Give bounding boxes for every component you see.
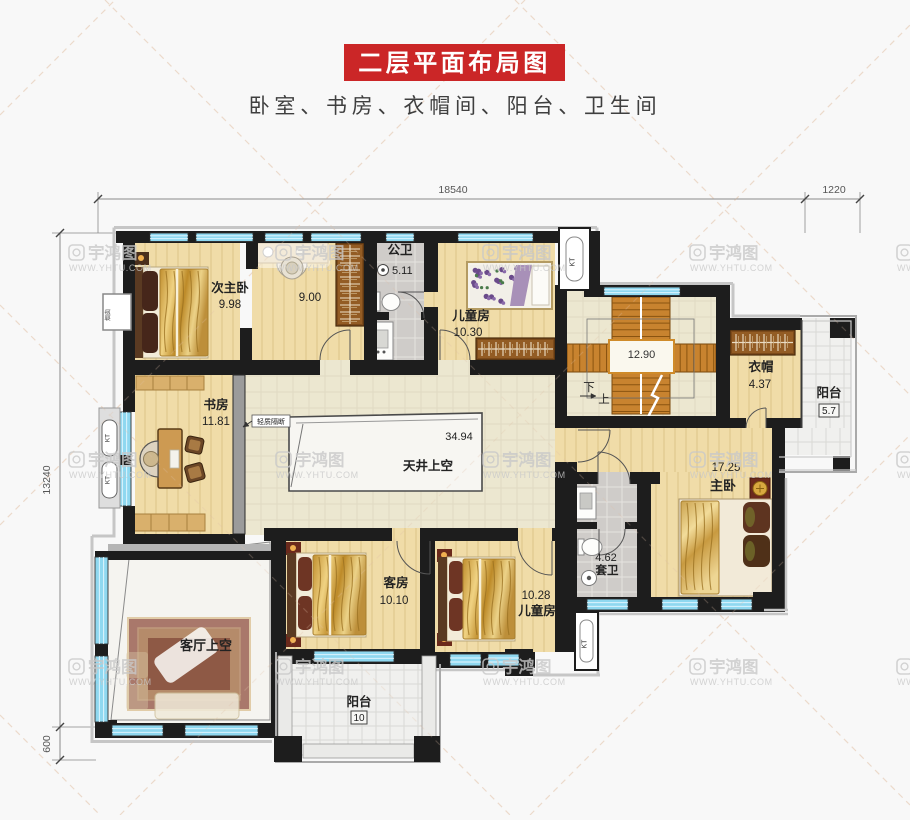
svg-text:客房: 客房 [382, 575, 408, 590]
svg-text:12.90: 12.90 [628, 349, 656, 361]
svg-text:WWW.YHTU.COM: WWW.YHTU.COM [897, 470, 910, 480]
svg-text:宇鸿图: 宇鸿图 [502, 243, 552, 263]
svg-text:宇鸿图: 宇鸿图 [709, 657, 759, 677]
svg-text:1220: 1220 [822, 184, 846, 196]
svg-text:上: 上 [598, 393, 610, 406]
svg-text:10: 10 [353, 713, 365, 724]
svg-text:卧室、书房、衣帽间、阳台、卫生间: 卧室、书房、衣帽间、阳台、卫生间 [249, 95, 662, 118]
svg-text:衣帽: 衣帽 [748, 359, 773, 374]
svg-text:34.94: 34.94 [445, 431, 473, 443]
svg-text:宇鸿图: 宇鸿图 [295, 657, 345, 677]
svg-text:宇鸿图: 宇鸿图 [709, 450, 759, 470]
svg-text:WWW.YHTU.COM: WWW.YHTU.COM [69, 677, 152, 687]
svg-text:KT: KT [582, 639, 589, 649]
svg-text:WWW.YHTU.COM: WWW.YHTU.COM [276, 677, 359, 687]
svg-text:10.28: 10.28 [522, 590, 551, 602]
svg-text:WWW.YHTU.COM: WWW.YHTU.COM [69, 470, 152, 480]
svg-text:WWW.YHTU.COM: WWW.YHTU.COM [483, 263, 566, 273]
svg-text:WWW.YHTU.COM: WWW.YHTU.COM [483, 470, 566, 480]
svg-text:阳台: 阳台 [346, 694, 371, 709]
svg-text:书房: 书房 [203, 397, 228, 412]
svg-text:4.62: 4.62 [595, 552, 616, 564]
svg-text:宇鸿图: 宇鸿图 [502, 450, 552, 470]
svg-text:13240: 13240 [41, 465, 53, 494]
svg-text:5.11: 5.11 [392, 265, 413, 277]
svg-text:11.81: 11.81 [202, 416, 230, 428]
svg-text:宇鸿图: 宇鸿图 [295, 450, 345, 470]
svg-text:宇鸿图: 宇鸿图 [88, 243, 138, 263]
svg-text:主卧: 主卧 [710, 478, 736, 493]
svg-text:9.98: 9.98 [219, 299, 241, 311]
svg-text:下: 下 [583, 382, 595, 394]
svg-text:儿童房: 儿童房 [451, 308, 490, 323]
svg-text:轻质隔断: 轻质隔断 [257, 417, 285, 426]
svg-text:WWW.YHTU.COM: WWW.YHTU.COM [690, 263, 773, 273]
svg-text:天井上空: 天井上空 [403, 458, 453, 473]
svg-text:10.30: 10.30 [454, 327, 483, 339]
svg-text:10.10: 10.10 [380, 595, 409, 607]
svg-text:18540: 18540 [438, 184, 467, 196]
svg-text:600: 600 [41, 735, 53, 753]
svg-text:客厅上空: 客厅上空 [180, 638, 232, 653]
svg-text:KT: KT [570, 257, 577, 267]
svg-text:宇鸿图: 宇鸿图 [709, 243, 759, 263]
svg-text:公卫: 公卫 [387, 243, 413, 257]
svg-text:WWW.YHTU.COM: WWW.YHTU.COM [690, 677, 773, 687]
svg-text:宇鸿图: 宇鸿图 [502, 657, 552, 677]
svg-text:套卫: 套卫 [596, 563, 619, 577]
svg-text:WWW.YHTU.COM: WWW.YHTU.COM [897, 263, 910, 273]
svg-text:WWW.YHTU.COM: WWW.YHTU.COM [690, 470, 773, 480]
svg-text:9.00: 9.00 [299, 292, 321, 304]
svg-text:KT: KT [105, 434, 112, 442]
svg-text:4.37: 4.37 [749, 379, 771, 391]
svg-text:WWW.YHTU.COM: WWW.YHTU.COM [483, 677, 566, 687]
svg-text:阳台: 阳台 [816, 385, 841, 400]
svg-text:WWW.YHTU.COM: WWW.YHTU.COM [276, 470, 359, 480]
svg-text:宇鸿图: 宇鸿图 [88, 450, 138, 470]
svg-text:WWW.YHTU.COM: WWW.YHTU.COM [276, 263, 359, 273]
svg-text:宇鸿图: 宇鸿图 [295, 243, 345, 263]
svg-text:宇鸿图: 宇鸿图 [88, 657, 138, 677]
svg-text:WWW.YHTU.COM: WWW.YHTU.COM [897, 677, 910, 687]
svg-text:二层平面布局图: 二层平面布局图 [358, 49, 551, 77]
svg-text:烟囱: 烟囱 [104, 309, 112, 321]
svg-text:儿童房: 儿童房 [517, 603, 556, 618]
svg-text:WWW.YHTU.COM: WWW.YHTU.COM [69, 263, 152, 273]
svg-text:5.7: 5.7 [822, 406, 836, 417]
